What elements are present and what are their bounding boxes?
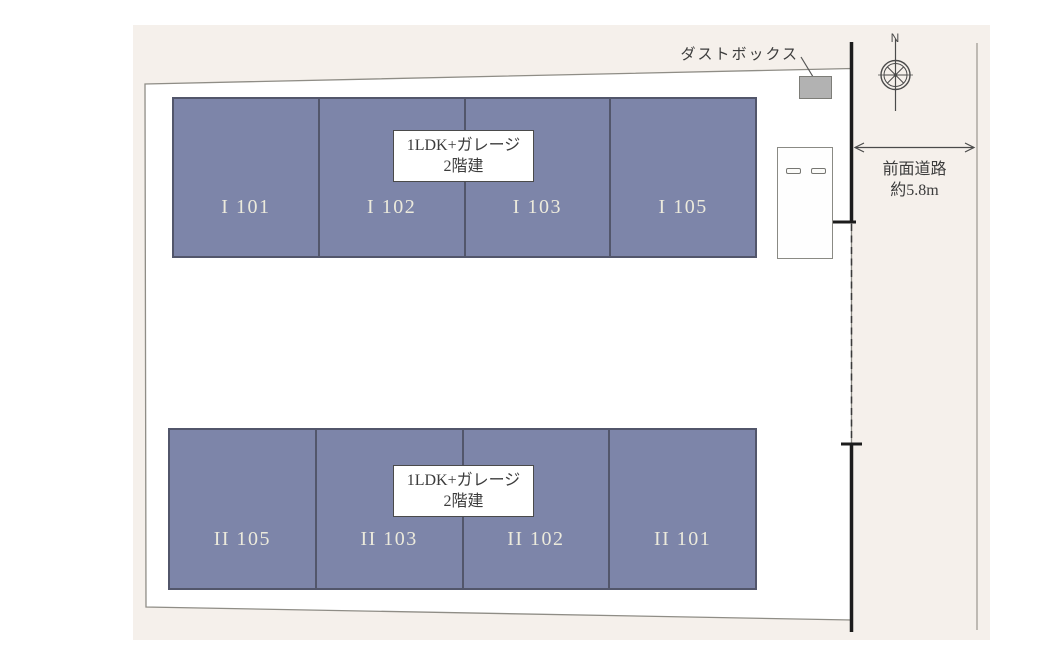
dustbox [799, 76, 832, 99]
unit-type-line-1: 1LDK+ガレージ [407, 135, 521, 156]
unit-type-line-1: 1LDK+ガレージ [407, 470, 521, 491]
front-road-width: 約5.8m [852, 180, 977, 201]
unit-label: II 102 [507, 529, 564, 549]
unit-ii-101: II 101 [610, 430, 755, 588]
unit-label: II 101 [654, 529, 711, 549]
stall-mark-icon [811, 168, 826, 174]
unit-label: I 105 [659, 197, 708, 217]
parking-stall [777, 147, 833, 259]
unit-type-label-row-2: 1LDK+ガレージ 2階建 [393, 465, 534, 517]
unit-label: I 102 [367, 197, 416, 217]
unit-label: I 101 [221, 197, 270, 217]
unit-i-101: I 101 [174, 99, 320, 256]
compass-north-label: N [883, 31, 907, 45]
site-plan-canvas: I 101 I 102 I 103 I 105 II 105 II 103 II… [0, 0, 1061, 667]
unit-label: II 103 [360, 529, 417, 549]
compass-icon [878, 39, 913, 111]
dustbox-label: ダストボックス [655, 43, 799, 64]
unit-i-105: I 105 [611, 99, 755, 256]
road-width-arrow [855, 143, 974, 152]
front-road-name: 前面道路 [852, 159, 977, 180]
unit-label: II 105 [214, 529, 271, 549]
unit-label: I 103 [513, 197, 562, 217]
front-road-label: 前面道路 約5.8m [852, 159, 977, 201]
unit-type-line-2: 2階建 [443, 491, 483, 512]
unit-ii-105: II 105 [170, 430, 317, 588]
stall-mark-icon [786, 168, 801, 174]
unit-type-label-row-1: 1LDK+ガレージ 2階建 [393, 130, 534, 182]
unit-type-line-2: 2階建 [443, 156, 483, 177]
